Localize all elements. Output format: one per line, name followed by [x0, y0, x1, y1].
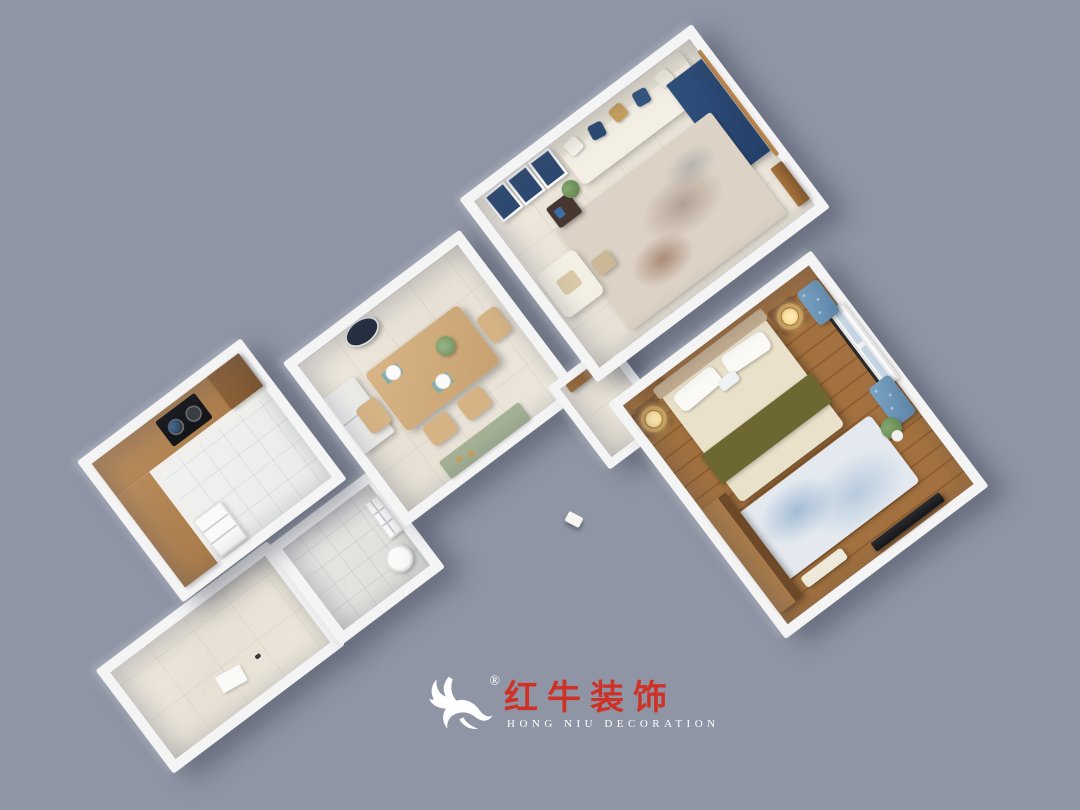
cooktop-burner [182, 402, 205, 425]
balcony-drain [254, 653, 261, 660]
bathroom-basin [380, 539, 419, 578]
placemat [381, 363, 404, 385]
registered-mark: ® [489, 674, 500, 690]
bull-logo-icon: ® [428, 674, 496, 738]
ring-lamp-left [635, 401, 672, 438]
armchair-cushion [555, 269, 583, 296]
bull-icon-svg [428, 674, 496, 738]
brand-name-chinese: 红牛装饰 [504, 680, 720, 716]
shelf-line [211, 524, 237, 544]
entry-mat [439, 402, 532, 479]
scene-background: ® 红牛装饰 HONG NIU DECORATION [0, 0, 1080, 810]
shoes [467, 449, 476, 458]
plate [432, 370, 454, 392]
balcony-mat [215, 664, 248, 693]
shoes [454, 455, 463, 464]
window-pane [834, 309, 863, 344]
wall-clock [340, 311, 385, 353]
bed-accent-pillow [716, 369, 740, 392]
brand-logo: ® 红牛装饰 HONG NIU DECORATION [428, 674, 720, 738]
shelf-line [203, 513, 229, 533]
placemat [431, 372, 454, 394]
brand-name-english: HONG NIU DECORATION [504, 718, 720, 730]
blue-decor [554, 206, 566, 219]
plate [382, 362, 404, 384]
table-flowers [432, 332, 460, 360]
brand-text: 红牛装饰 HONG NIU DECORATION [504, 674, 720, 730]
